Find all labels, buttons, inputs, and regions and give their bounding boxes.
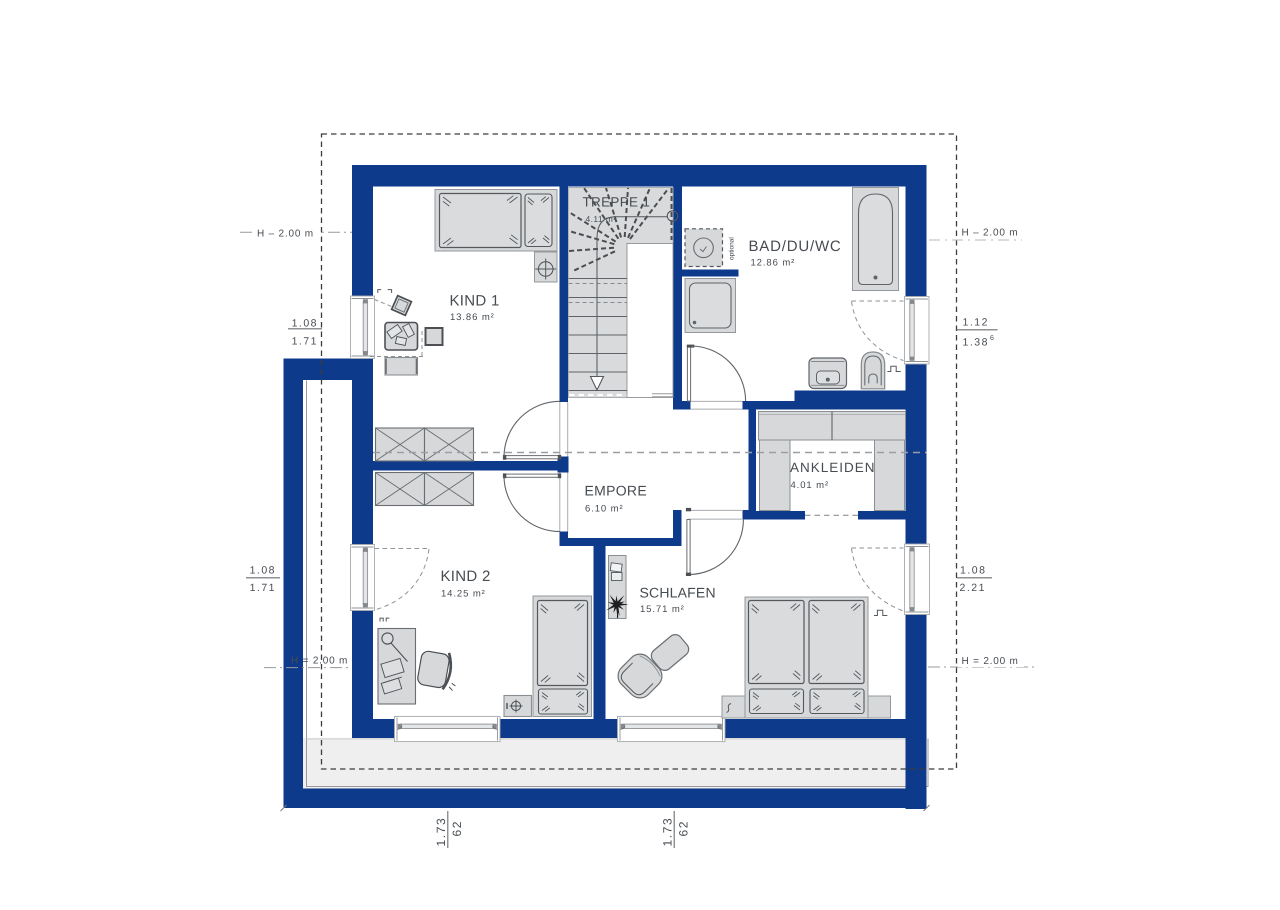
- svg-text:optional: optional: [729, 237, 736, 260]
- svg-text:1.73: 1.73: [661, 817, 675, 847]
- svg-text:1.08: 1.08: [292, 318, 318, 330]
- svg-text:6: 6: [990, 335, 995, 342]
- svg-text:4.11 m²: 4.11 m²: [586, 214, 617, 224]
- svg-text:6.10 m²: 6.10 m²: [585, 504, 624, 515]
- svg-text:H – 2.00 m: H – 2.00 m: [962, 228, 1019, 239]
- svg-text:2.21: 2.21: [960, 582, 986, 594]
- svg-text:1.08: 1.08: [960, 565, 986, 577]
- svg-text:15.71 m²: 15.71 m²: [640, 604, 685, 615]
- svg-text:1.08: 1.08: [250, 565, 276, 577]
- svg-text:KIND 2: KIND 2: [441, 568, 491, 585]
- svg-text:12.86 m²: 12.86 m²: [751, 258, 796, 269]
- svg-text:H = 2.00 m: H = 2.00 m: [962, 656, 1019, 667]
- svg-text:KIND 1: KIND 1: [450, 293, 500, 310]
- svg-text:H – 2.00 m: H – 2.00 m: [257, 229, 314, 240]
- svg-text:62: 62: [450, 820, 464, 837]
- svg-text:1.73: 1.73: [434, 817, 448, 847]
- svg-text:EMPORE: EMPORE: [585, 483, 647, 499]
- svg-text:13.86 m²: 13.86 m²: [450, 312, 495, 323]
- svg-text:62: 62: [677, 820, 691, 837]
- svg-text:H = 2.00 m: H = 2.00 m: [291, 656, 348, 667]
- svg-text:1.12: 1.12: [963, 317, 989, 329]
- svg-text:SCHLAFEN: SCHLAFEN: [640, 585, 716, 601]
- svg-text:TREPPE 1: TREPPE 1: [583, 195, 651, 210]
- svg-text:1.71: 1.71: [292, 336, 318, 348]
- svg-text:4.01 m²: 4.01 m²: [791, 480, 830, 491]
- svg-text:1.38: 1.38: [963, 337, 989, 349]
- svg-text:BAD/DU/WC: BAD/DU/WC: [749, 238, 842, 255]
- svg-text:14.25 m²: 14.25 m²: [441, 589, 486, 600]
- svg-text:1.71: 1.71: [250, 582, 276, 594]
- svg-text:ANKLEIDEN: ANKLEIDEN: [790, 460, 876, 475]
